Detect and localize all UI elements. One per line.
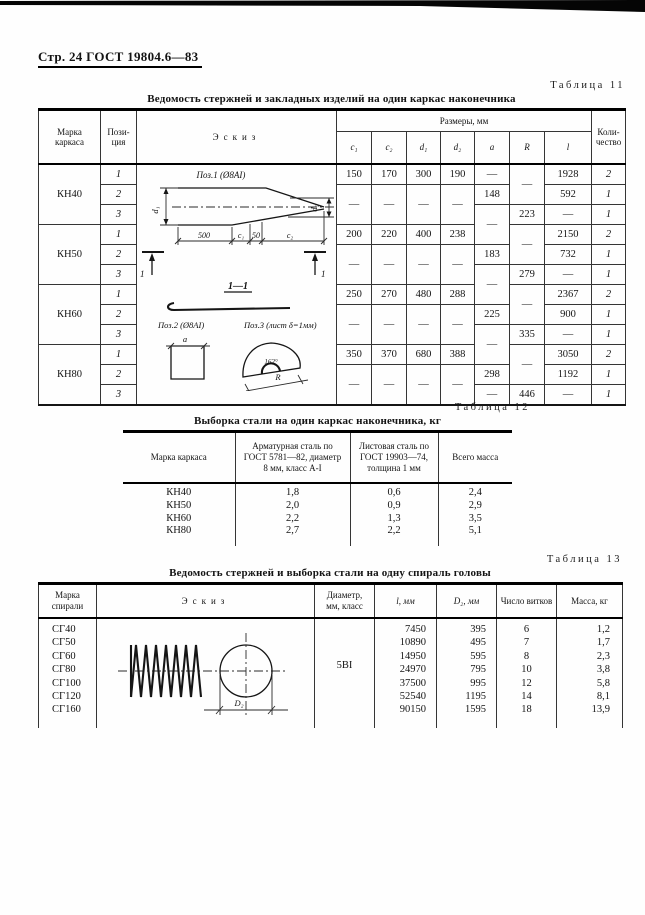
t13-marka: СГ120 bbox=[52, 690, 95, 703]
t13-vitki: 10 bbox=[498, 663, 555, 676]
t11-d1: — bbox=[407, 365, 441, 406]
t11-R: — bbox=[510, 345, 545, 385]
t11-qty: 1 bbox=[592, 245, 626, 265]
t12-total-col: 2,4 2,9 3,5 5,1 bbox=[438, 483, 512, 546]
t11-qty: 1 bbox=[592, 305, 626, 325]
t11-c2: 270 bbox=[372, 285, 407, 305]
t11-head-eskiz: Эскиз bbox=[137, 110, 337, 165]
t11-head-pos: Пози- ция bbox=[101, 110, 137, 165]
t13-marka: СГ50 bbox=[52, 636, 95, 649]
d1-label: d₁ bbox=[150, 206, 160, 213]
t12-armatura: 2,0 bbox=[237, 500, 349, 513]
t11-qty: 1 bbox=[592, 325, 626, 345]
t11-d1: 480 bbox=[407, 285, 441, 305]
t11-d2: — bbox=[441, 365, 475, 406]
table13-block: Таблица 13 Ведомость стержней и выборка … bbox=[38, 554, 622, 728]
table13-title: Ведомость стержней и выборка стали на од… bbox=[38, 567, 622, 579]
t13-head-vitki: Число витков bbox=[497, 584, 557, 619]
t11-a: 225 bbox=[475, 305, 510, 325]
t11-l: 592 bbox=[545, 185, 592, 205]
t13-marka-col: СГ40 СГ50 СГ60 СГ80 СГ100 СГ120 СГ160 bbox=[39, 618, 97, 728]
t13-massa: 5,8 bbox=[558, 677, 610, 690]
t13-l: 52540 bbox=[376, 690, 426, 703]
t11-head-qty: Коли- чество bbox=[592, 110, 626, 165]
t12-armatura: 2,7 bbox=[237, 525, 349, 538]
t12-head-total: Всего масса bbox=[438, 432, 512, 484]
t11-l: 1192 bbox=[545, 365, 592, 385]
t13-marka: СГ160 bbox=[52, 703, 95, 716]
t11-d2: 238 bbox=[441, 225, 475, 245]
table13-label: Таблица 13 bbox=[38, 554, 622, 565]
t11-qty: 2 bbox=[592, 345, 626, 365]
t11-l: 900 bbox=[545, 305, 592, 325]
t11-qty: 1 bbox=[592, 265, 626, 285]
t11-l: — bbox=[545, 385, 592, 406]
t11-c2: — bbox=[372, 365, 407, 406]
t12-armatura: 2,2 bbox=[237, 513, 349, 526]
page-header: Стр. 24 ГОСТ 19804.6—83 bbox=[38, 48, 202, 66]
t11-d2: — bbox=[441, 245, 475, 285]
t11-d1: 680 bbox=[407, 345, 441, 365]
t11-a: — bbox=[475, 325, 510, 365]
t11-c1: 150 bbox=[337, 164, 372, 185]
t11-d1: — bbox=[407, 245, 441, 285]
t11-R: — bbox=[510, 164, 545, 205]
t11-head-marka: Марка каркаса bbox=[39, 110, 101, 165]
t11-a: — bbox=[475, 205, 510, 245]
t11-R: — bbox=[510, 285, 545, 325]
t11-c1: 350 bbox=[337, 345, 372, 365]
t12-marka: КН80 bbox=[124, 525, 234, 538]
t13-marka: СГ100 bbox=[52, 677, 95, 690]
t11-c1: — bbox=[337, 365, 372, 406]
scanned-gost-page: { "page": { "header_prefix": "Стр. 24", … bbox=[0, 0, 645, 915]
t13-eskiz-cell: D₂ bbox=[97, 618, 315, 728]
t12-marka-col: КН40 КН50 КН60 КН80 bbox=[123, 483, 235, 546]
t11-head-R: R bbox=[510, 132, 545, 165]
t13-vitki: 14 bbox=[498, 690, 555, 703]
t12-armatura-col: 1,8 2,0 2,2 2,7 bbox=[235, 483, 350, 546]
t11-d2: — bbox=[441, 185, 475, 225]
D2-dim-label: D₂ bbox=[233, 698, 243, 708]
t13-head-diam: Диаметр, мм, класс bbox=[315, 584, 375, 619]
table13: Марка спирали Эскиз Диаметр, мм, класс l… bbox=[38, 582, 623, 728]
t11-R: 335 bbox=[510, 325, 545, 345]
t12-body-row: КН40 КН50 КН60 КН80 1,8 2,0 2,2 2,7 0,6 … bbox=[123, 483, 512, 546]
t11-a: — bbox=[475, 265, 510, 305]
t11-d2: 388 bbox=[441, 345, 475, 365]
t11-qty: 1 bbox=[592, 365, 626, 385]
t13-head-marka: Марка спирали bbox=[39, 584, 97, 619]
t11-c1: — bbox=[337, 305, 372, 345]
t13-d2: 395 bbox=[438, 623, 486, 636]
t13-vitki-col: 6 7 8 10 12 14 18 bbox=[497, 618, 557, 728]
t11-a: — bbox=[475, 164, 510, 185]
t11-pos: 2 bbox=[101, 185, 137, 205]
t11-l: 3050 bbox=[545, 345, 592, 365]
t13-d2: 1595 bbox=[438, 703, 486, 716]
a-dim-label: a bbox=[182, 334, 186, 344]
section-view-label: 1—1 bbox=[228, 281, 248, 292]
t11-head-d2: d₂ bbox=[441, 132, 475, 165]
t13-d2: 595 bbox=[438, 650, 486, 663]
t12-total: 2,4 bbox=[440, 487, 512, 500]
spiral-sketch: D₂ bbox=[98, 623, 314, 723]
t11-row: КН40 1 Поз.1 (Ø8АI) d₁ bbox=[39, 164, 626, 185]
t11-eskiz-cell: Поз.1 (Ø8АI) d₁ d₂ bbox=[137, 164, 337, 405]
table12-block: Таблица 12 Выборка стали на один каркас … bbox=[123, 402, 530, 546]
t12-listovaya: 1,3 bbox=[352, 513, 437, 526]
t11-c2: — bbox=[372, 305, 407, 345]
t13-massa: 8,1 bbox=[558, 690, 610, 703]
t11-c2: 370 bbox=[372, 345, 407, 365]
t11-R: 279 bbox=[510, 265, 545, 285]
t11-head-c1: c₁ bbox=[337, 132, 372, 165]
t13-head-massa: Масса, кг bbox=[557, 584, 623, 619]
t12-marka: КН40 bbox=[124, 487, 234, 500]
page-header-text: Стр. 24 ГОСТ 19804.6—83 bbox=[38, 49, 202, 68]
t11-l: — bbox=[545, 325, 592, 345]
t11-pos: 1 bbox=[101, 345, 137, 365]
t12-listovaya: 2,2 bbox=[352, 525, 437, 538]
t13-marka: СГ60 bbox=[52, 650, 95, 663]
table11-block: Таблица 11 Ведомость стержней и закладны… bbox=[38, 80, 625, 406]
t13-l: 7450 bbox=[376, 623, 426, 636]
t11-c1: 250 bbox=[337, 285, 372, 305]
page-number: Стр. 24 bbox=[38, 49, 83, 64]
t13-massa: 2,3 bbox=[558, 650, 610, 663]
t11-d2: 190 bbox=[441, 164, 475, 185]
section-mark-right-label: 1 bbox=[321, 269, 326, 279]
t11-qty: 2 bbox=[592, 164, 626, 185]
t13-massa: 13,9 bbox=[558, 703, 610, 716]
t11-c2: 170 bbox=[372, 164, 407, 185]
t11-qty: 1 bbox=[592, 185, 626, 205]
t11-pos: 3 bbox=[101, 265, 137, 285]
t11-l: 1928 bbox=[545, 164, 592, 185]
t13-head-d2: D₂, мм bbox=[437, 584, 497, 619]
t11-c2: 220 bbox=[372, 225, 407, 245]
r-dim-label: R bbox=[274, 372, 281, 382]
t13-l: 90150 bbox=[376, 703, 426, 716]
t13-diam-col: 5ВI bbox=[315, 618, 375, 728]
t13-d2: 1195 bbox=[438, 690, 486, 703]
t11-marka-kn60: КН60 bbox=[39, 285, 101, 345]
t13-vitki: 6 bbox=[498, 623, 555, 636]
t11-R: — bbox=[510, 225, 545, 265]
t11-a: 298 bbox=[475, 365, 510, 385]
t12-marka: КН50 bbox=[124, 500, 234, 513]
t11-c1: — bbox=[337, 245, 372, 285]
angle-label: 162° bbox=[264, 358, 278, 366]
t11-d1: — bbox=[407, 185, 441, 225]
t11-d2: 288 bbox=[441, 285, 475, 305]
t13-l: 10890 bbox=[376, 636, 426, 649]
t12-total: 3,5 bbox=[440, 513, 512, 526]
pos2-label: Поз.2 (Ø8АI) bbox=[157, 320, 204, 330]
t11-l: 2367 bbox=[545, 285, 592, 305]
t13-vitki: 18 bbox=[498, 703, 555, 716]
t11-R: 223 bbox=[510, 205, 545, 225]
gost-number: ГОСТ 19804.6—83 bbox=[86, 49, 198, 64]
t12-listovaya: 0,9 bbox=[352, 500, 437, 513]
t13-diam-value: 5ВI bbox=[316, 659, 373, 672]
t11-marka-kn40: КН40 bbox=[39, 164, 101, 225]
t11-d1: 300 bbox=[407, 164, 441, 185]
dim-c2-label: c₂ bbox=[286, 231, 293, 240]
t11-pos: 1 bbox=[101, 285, 137, 305]
scan-artifact-band bbox=[0, 0, 645, 14]
t13-l: 37500 bbox=[376, 677, 426, 690]
t11-head-d1: d₁ bbox=[407, 132, 441, 165]
t11-c2: — bbox=[372, 185, 407, 225]
t11-marka-kn50: КН50 bbox=[39, 225, 101, 285]
t13-head-l: l, мм bbox=[375, 584, 437, 619]
t11-pos: 2 bbox=[101, 365, 137, 385]
t13-head-eskiz: Эскиз bbox=[97, 584, 315, 619]
t13-vitki: 12 bbox=[498, 677, 555, 690]
t12-head-armatura: Арматурная сталь по ГОСТ 5781—82, диамет… bbox=[235, 432, 350, 484]
t13-d2: 995 bbox=[438, 677, 486, 690]
t11-pos: 1 bbox=[101, 164, 137, 185]
pos3-label: Поз.3 (лист δ=1мм) bbox=[243, 320, 317, 330]
t13-l: 24970 bbox=[376, 663, 426, 676]
t11-l: 2150 bbox=[545, 225, 592, 245]
t11-pos: 3 bbox=[101, 325, 137, 345]
table11-label: Таблица 11 bbox=[38, 80, 625, 91]
t11-qty: 1 bbox=[592, 205, 626, 225]
t11-a: 148 bbox=[475, 185, 510, 205]
table11-title: Ведомость стержней и закладных изделий н… bbox=[38, 93, 625, 105]
t11-l: — bbox=[545, 265, 592, 285]
t11-qty: 2 bbox=[592, 285, 626, 305]
t11-c1: — bbox=[337, 185, 372, 225]
t11-head-l: l bbox=[545, 132, 592, 165]
pos1-label: Поз.1 (Ø8АI) bbox=[195, 170, 245, 180]
scan-band-shape bbox=[0, 0, 645, 14]
t11-marka-kn80: КН80 bbox=[39, 345, 101, 406]
t13-massa: 1,2 bbox=[558, 623, 610, 636]
t11-qty: 1 bbox=[592, 385, 626, 406]
t11-pos: 1 bbox=[101, 225, 137, 245]
t12-total: 5,1 bbox=[440, 525, 512, 538]
t13-vitki: 7 bbox=[498, 636, 555, 649]
t12-armatura: 1,8 bbox=[237, 487, 349, 500]
t12-head-marka: Марка каркаса bbox=[123, 432, 235, 484]
table12: Марка каркаса Арматурная сталь по ГОСТ 5… bbox=[123, 430, 512, 546]
t11-qty: 2 bbox=[592, 225, 626, 245]
t11-pos: 2 bbox=[101, 245, 137, 265]
table12-label: Таблица 12 bbox=[123, 402, 530, 413]
t11-pos: 3 bbox=[101, 205, 137, 225]
t13-massa-col: 1,2 1,7 2,3 3,8 5,8 8,1 13,9 bbox=[557, 618, 623, 728]
t11-d1: 400 bbox=[407, 225, 441, 245]
dim-500-label: 500 bbox=[198, 231, 210, 240]
dim-c1-label: c₁ bbox=[237, 231, 244, 240]
t13-d2: 795 bbox=[438, 663, 486, 676]
t12-total: 2,9 bbox=[440, 500, 512, 513]
t11-d1: — bbox=[407, 305, 441, 345]
t11-head-razmery: Размеры, мм bbox=[337, 110, 592, 132]
t11-pos: 2 bbox=[101, 305, 137, 325]
t13-l-col: 7450 10890 14950 24970 37500 52540 90150 bbox=[375, 618, 437, 728]
t13-d2: 495 bbox=[438, 636, 486, 649]
t13-marka: СГ40 bbox=[52, 623, 95, 636]
table11: Марка каркаса Пози- ция Эскиз Размеры, м… bbox=[38, 108, 626, 406]
d2-label: d₂ bbox=[309, 204, 319, 211]
t12-head-listovaya: Листовая сталь по ГОСТ 19903—74, толщина… bbox=[350, 432, 438, 484]
t13-l: 14950 bbox=[376, 650, 426, 663]
t11-c1: 200 bbox=[337, 225, 372, 245]
t11-head-c2: c₂ bbox=[372, 132, 407, 165]
table12-title: Выборка стали на один каркас наконечника… bbox=[123, 415, 512, 427]
t11-l: 732 bbox=[545, 245, 592, 265]
dim-50-label: 50 bbox=[252, 231, 260, 240]
t11-c2: — bbox=[372, 245, 407, 285]
t11-d2: — bbox=[441, 305, 475, 345]
t11-l: — bbox=[545, 205, 592, 225]
t12-listovaya-col: 0,6 0,9 1,3 2,2 bbox=[350, 483, 438, 546]
t13-body-row: СГ40 СГ50 СГ60 СГ80 СГ100 СГ120 СГ160 bbox=[39, 618, 623, 728]
t13-vitki: 8 bbox=[498, 650, 555, 663]
t12-listovaya: 0,6 bbox=[352, 487, 437, 500]
tip-sketch: Поз.1 (Ø8АI) d₁ d₂ bbox=[138, 165, 336, 391]
section-mark-left-label: 1 bbox=[140, 269, 145, 279]
t12-marka: КН60 bbox=[124, 513, 234, 526]
t13-massa: 1,7 bbox=[558, 636, 610, 649]
t13-marka: СГ80 bbox=[52, 663, 95, 676]
t13-d2-col: 395 495 595 795 995 1195 1595 bbox=[437, 618, 497, 728]
t11-a: 183 bbox=[475, 245, 510, 265]
t13-massa: 3,8 bbox=[558, 663, 610, 676]
t11-head-a: a bbox=[475, 132, 510, 165]
